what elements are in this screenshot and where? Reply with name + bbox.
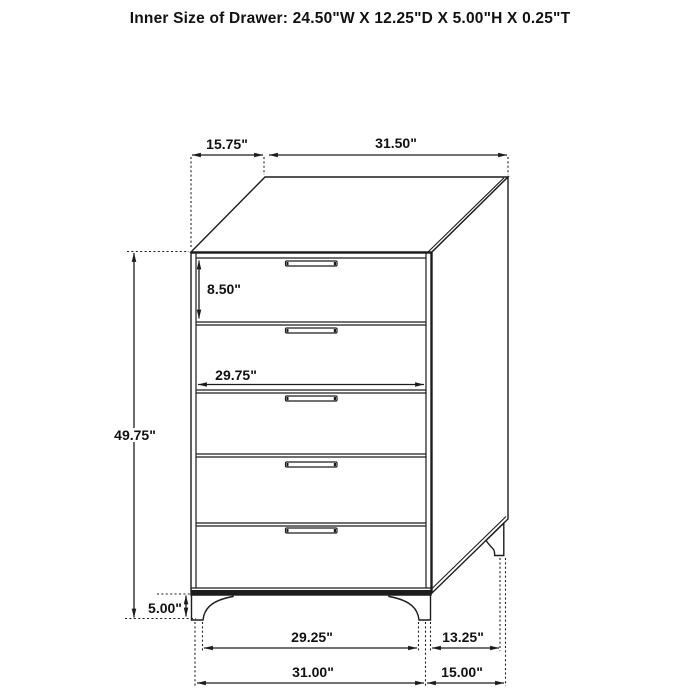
drawer-handle <box>286 328 338 333</box>
dim-label-drawer-front-height: 8.50" <box>205 282 243 296</box>
front-leg-right <box>389 595 431 620</box>
dim-label-drawer-opening-width: 29.75" <box>213 368 259 382</box>
drawer-handle <box>286 261 338 266</box>
dresser-front-frame <box>191 253 431 595</box>
dim-label-side-legs-inner-span: 13.25" <box>440 630 486 644</box>
furniture-dimension-diagram: Inner Size of Drawer: 24.50"W X 12.25"D … <box>0 0 700 700</box>
drawer-handle <box>286 396 338 401</box>
drawer-handle <box>286 528 338 533</box>
dresser-line-drawing <box>0 0 700 700</box>
dim-label-overall-height: 49.75" <box>112 428 158 442</box>
base-rail <box>191 590 431 595</box>
dim-label-top-width: 31.50" <box>373 136 419 150</box>
front-leg-left <box>192 595 234 620</box>
drawer-handle <box>286 462 338 467</box>
dim-label-overall-width: 31.00" <box>290 665 336 679</box>
dim-label-top-depth: 15.75" <box>204 137 250 151</box>
dim-label-overall-depth: 15.00" <box>439 665 485 679</box>
dim-label-leg-height: 5.00" <box>146 601 184 615</box>
dim-label-front-legs-inner-span: 29.25" <box>289 630 335 644</box>
